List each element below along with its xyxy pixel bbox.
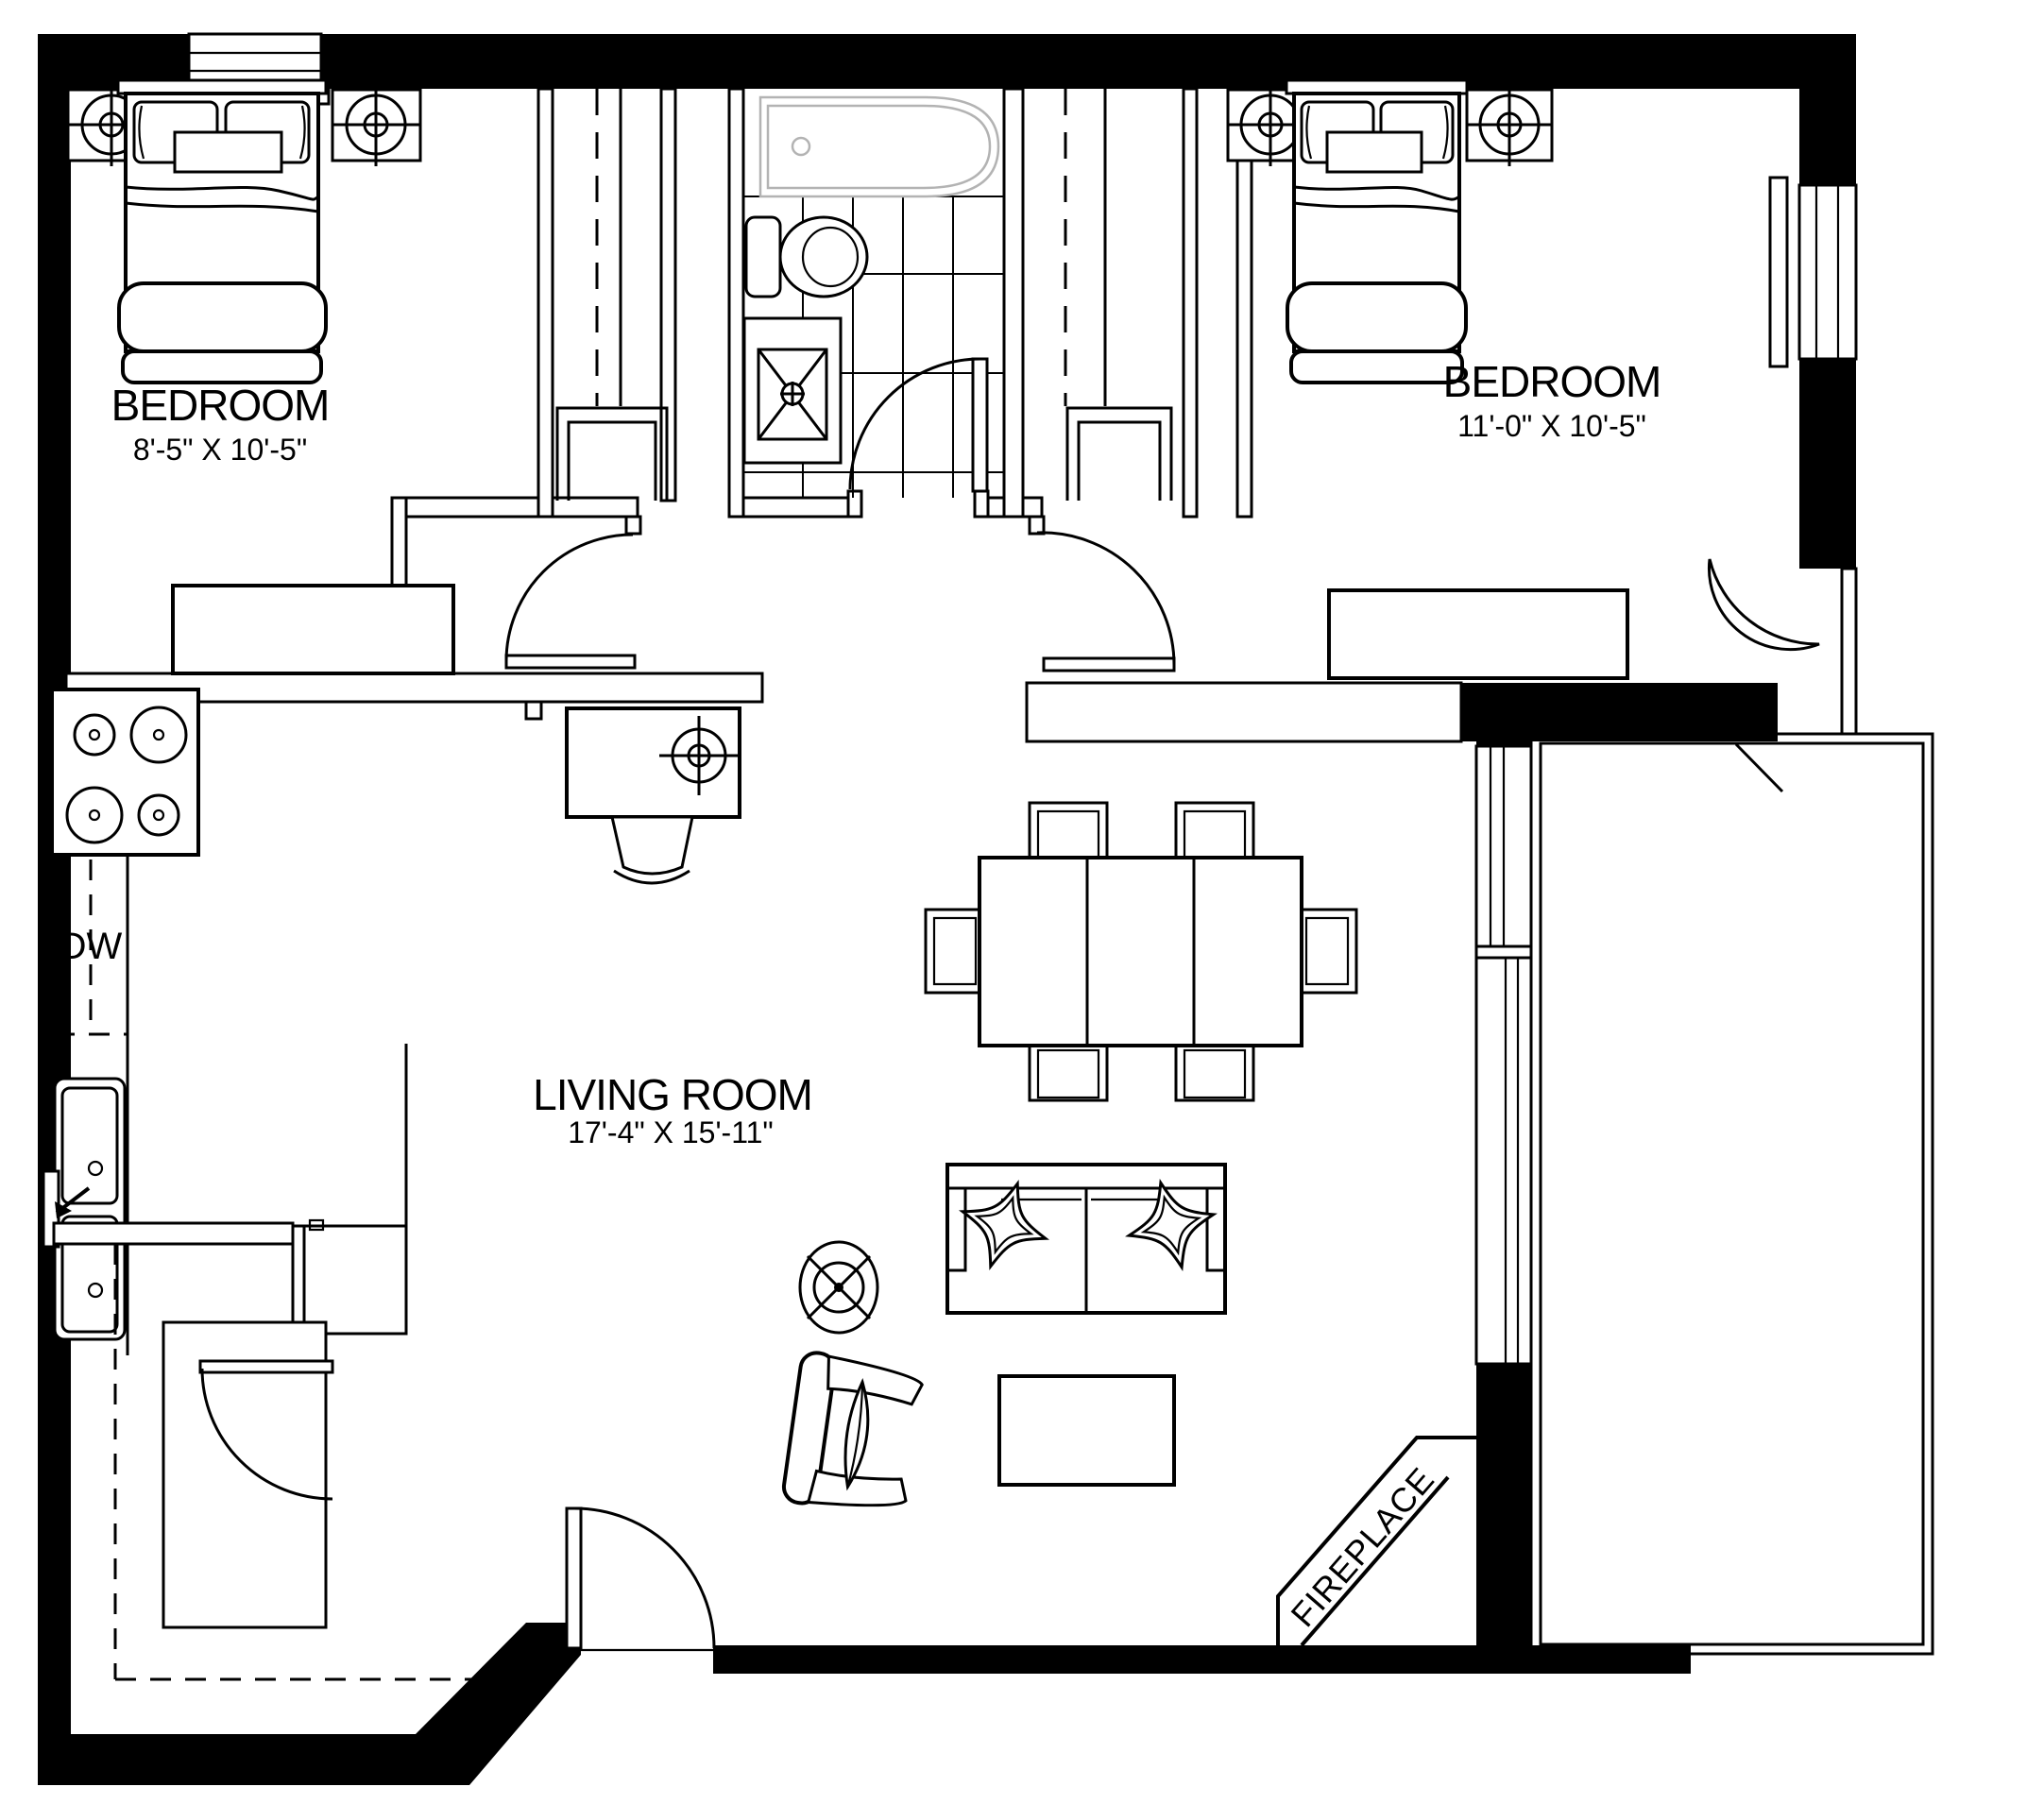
living-room-window-wall — [1476, 746, 1531, 1364]
nightstand — [332, 83, 420, 166]
living-room: LIVING ROOM 17'-4" X 15'-11" FIREPLACE — [533, 708, 1476, 1645]
tub-drain — [792, 138, 809, 155]
door-swing-arc — [1037, 533, 1174, 665]
door-leaf — [567, 1508, 581, 1648]
room-dimensions: 8'-5" X 10'-5" — [133, 433, 307, 467]
door-leaf — [506, 655, 635, 668]
footboard — [123, 351, 321, 383]
room-label: LIVING ROOM — [533, 1070, 812, 1119]
door-jamb — [526, 702, 541, 719]
footboard — [1291, 351, 1462, 383]
floor-plan: BEDROOM 8'-5" X 10'-5" — [0, 0, 2044, 1804]
bathroom-left-wall — [729, 89, 743, 517]
desk-chair — [612, 817, 692, 874]
armchair-arm — [809, 1467, 909, 1516]
room-dimensions: 17'-4" X 15'-11" — [568, 1115, 774, 1149]
dining-chair — [1176, 803, 1253, 861]
nightstand — [1466, 83, 1553, 166]
door-swing-arc — [506, 535, 633, 661]
dining-chair — [1030, 803, 1107, 861]
window-sill — [1770, 178, 1787, 366]
coffee-table — [999, 1376, 1174, 1485]
chamfer-wall — [416, 1623, 581, 1785]
counter-appliance — [293, 1220, 406, 1334]
left-wall — [38, 34, 71, 1734]
armchair-arm — [824, 1356, 924, 1405]
dresser — [173, 586, 453, 673]
window-mullion — [1476, 946, 1531, 958]
closet1-door-pocket-inner — [569, 422, 656, 501]
closet1-left-wall — [538, 89, 553, 517]
wall-hall-living — [1027, 683, 1461, 741]
dining-table — [979, 858, 1302, 1046]
folded-sheet — [1327, 132, 1422, 172]
bottom-left-wall — [38, 1734, 416, 1785]
dining-chair — [1176, 1042, 1253, 1100]
kitchen-sink — [43, 1079, 125, 1339]
bottom-wall — [713, 1645, 1691, 1674]
shower — [744, 318, 841, 463]
bathroom — [743, 97, 1004, 498]
stove — [52, 689, 198, 855]
door-leaf — [973, 359, 987, 491]
floor-plan-drawing: BEDROOM 8'-5" X 10'-5" — [0, 0, 2044, 1804]
headboard — [118, 80, 326, 94]
foot-bolster — [119, 283, 326, 351]
door-jamb — [848, 491, 861, 517]
balcony-rail-return — [1842, 569, 1856, 734]
counter-peninsula — [54, 1223, 293, 1244]
folded-sheet — [175, 132, 281, 172]
dining-chair — [1298, 910, 1356, 993]
desk — [567, 708, 740, 883]
bed — [1286, 80, 1467, 383]
dresser — [1329, 590, 1627, 678]
door-swing-arc — [850, 359, 980, 489]
sofa — [947, 1165, 1225, 1313]
ceiling-light-icon — [800, 1242, 877, 1333]
armchair — [782, 1351, 925, 1518]
corner-plant — [1709, 559, 1819, 650]
fireplace: FIREPLACE — [1278, 1438, 1476, 1645]
wall-bath-bottom-left — [729, 498, 855, 517]
dishwasher-label: DW — [60, 926, 123, 967]
wall-hall-bed1 — [406, 498, 638, 517]
bathtub — [760, 97, 998, 196]
door-jamb — [1030, 517, 1044, 534]
door-jamb — [626, 517, 640, 534]
fireplace-label: FIREPLACE — [1284, 1459, 1442, 1634]
foot-bolster — [1287, 283, 1466, 351]
bedroom2-window — [1770, 178, 1856, 366]
dining-set — [926, 803, 1356, 1100]
bed — [118, 80, 326, 383]
room-dimensions: 11'-0" X 10'-5" — [1457, 409, 1646, 443]
front-door — [567, 1508, 714, 1650]
closet2-door-pocket-inner — [1079, 422, 1160, 501]
wall-corner-chamfer-line — [1736, 744, 1782, 791]
entry — [163, 1322, 714, 1650]
armchair-cushion — [840, 1381, 874, 1489]
closet2-right-wall — [1184, 89, 1197, 517]
balcony-outline — [1531, 734, 1933, 1654]
door-leaf — [1044, 658, 1174, 671]
bathroom-right-wall — [1004, 89, 1023, 517]
bedroom2: BEDROOM 11'-0" X 10'-5" — [1037, 80, 1819, 678]
door-leaf — [200, 1361, 332, 1372]
room-label: BEDROOM — [111, 381, 330, 430]
balcony — [1531, 734, 1933, 1654]
toilet — [746, 217, 867, 297]
headboard — [1286, 80, 1467, 94]
dining-chair — [926, 910, 984, 993]
room-label: BEDROOM — [1443, 357, 1661, 406]
bedroom1-door — [506, 535, 635, 668]
door-swing-arc — [574, 1508, 714, 1648]
dining-chair — [1030, 1042, 1107, 1100]
bedroom2-door — [1037, 533, 1174, 671]
balcony-outline-inner — [1541, 743, 1923, 1644]
door-jamb — [975, 491, 988, 517]
